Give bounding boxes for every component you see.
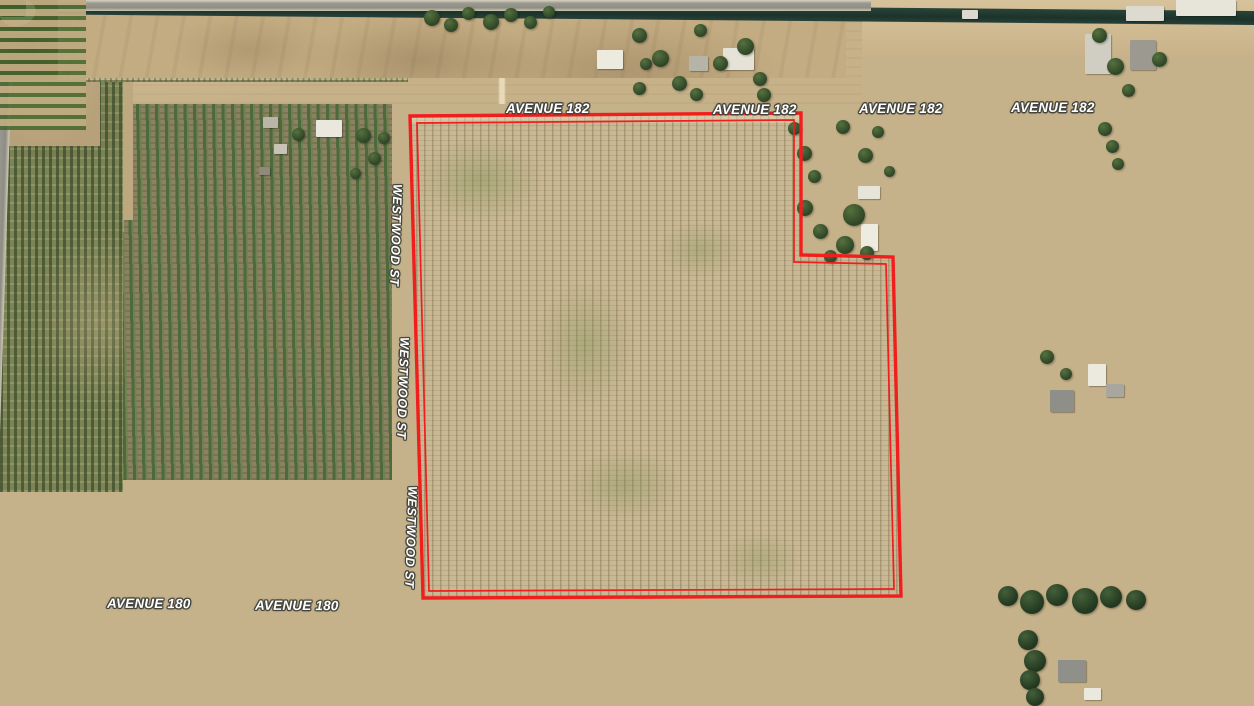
building <box>316 120 342 137</box>
road-label-westwood-3: WESTWOOD ST <box>403 486 419 589</box>
tree <box>757 88 771 102</box>
tree <box>737 38 754 55</box>
tree <box>843 204 865 226</box>
road-label-avenue180-2: AVENUE 180 <box>255 599 339 613</box>
house <box>1050 390 1074 412</box>
tree <box>836 236 854 254</box>
tree <box>483 14 499 30</box>
tree <box>860 246 874 260</box>
tree <box>1060 368 1072 380</box>
tree <box>1024 650 1046 672</box>
garden-rows <box>0 0 86 130</box>
tree <box>788 122 801 135</box>
tree <box>633 82 646 95</box>
building <box>689 56 708 71</box>
tree <box>356 128 371 143</box>
tree <box>753 72 767 86</box>
tree <box>808 170 821 183</box>
tree <box>524 16 537 29</box>
road-label-avenue182-3: AVENUE 182 <box>859 102 943 116</box>
road-avenue-182 <box>0 0 871 11</box>
tree <box>797 200 813 216</box>
tree <box>824 250 837 263</box>
building <box>1106 384 1124 397</box>
tree <box>713 56 728 71</box>
tree <box>1122 84 1135 97</box>
tree <box>1152 52 1167 67</box>
tree <box>813 224 828 239</box>
tree <box>1046 584 1068 606</box>
building <box>1084 688 1101 700</box>
tree <box>884 166 895 177</box>
road-label-avenue182-2: AVENUE 182 <box>713 103 797 117</box>
barn <box>1058 660 1086 682</box>
tree <box>998 586 1018 606</box>
building <box>1126 6 1164 21</box>
tree <box>368 152 381 165</box>
road-label-avenue182-4: AVENUE 182 <box>1011 101 1095 115</box>
tree <box>672 76 687 91</box>
tree <box>858 148 873 163</box>
satellite-map-canvas[interactable]: AVENUE 182 AVENUE 182 AVENUE 182 AVENUE … <box>0 0 1254 706</box>
building <box>274 144 287 154</box>
building <box>597 50 623 69</box>
building <box>962 10 978 19</box>
building <box>263 117 278 128</box>
tree <box>424 10 440 26</box>
tree <box>836 120 850 134</box>
tree <box>1040 350 1054 364</box>
tree <box>543 6 555 18</box>
tree <box>1100 586 1122 608</box>
tree <box>872 126 884 138</box>
tree <box>462 7 475 20</box>
tree <box>1072 588 1098 614</box>
tree <box>1112 158 1124 170</box>
tree <box>444 18 458 32</box>
tree <box>694 24 707 37</box>
tree <box>797 146 812 161</box>
tree <box>350 168 361 179</box>
tree <box>292 128 305 141</box>
road-label-westwood-1: WESTWOOD ST <box>388 184 404 287</box>
road-label-avenue180-1: AVENUE 180 <box>107 597 191 611</box>
tree <box>1026 688 1044 706</box>
tree <box>1092 28 1107 43</box>
road-label-westwood-2: WESTWOOD ST <box>395 337 411 440</box>
tree <box>1107 58 1124 75</box>
tree <box>1126 590 1146 610</box>
tree <box>1018 630 1038 650</box>
road-label-avenue182-1: AVENUE 182 <box>506 102 590 116</box>
tree <box>1020 670 1040 690</box>
tree <box>632 28 647 43</box>
building <box>858 186 880 199</box>
tree <box>652 50 669 67</box>
tree <box>504 8 518 22</box>
tree <box>378 132 390 144</box>
building <box>1088 364 1106 386</box>
tree <box>1098 122 1112 136</box>
building <box>259 167 270 175</box>
tree <box>640 58 652 70</box>
building <box>1176 0 1236 16</box>
tree <box>1106 140 1119 153</box>
tree <box>1020 590 1044 614</box>
tree <box>690 88 703 101</box>
